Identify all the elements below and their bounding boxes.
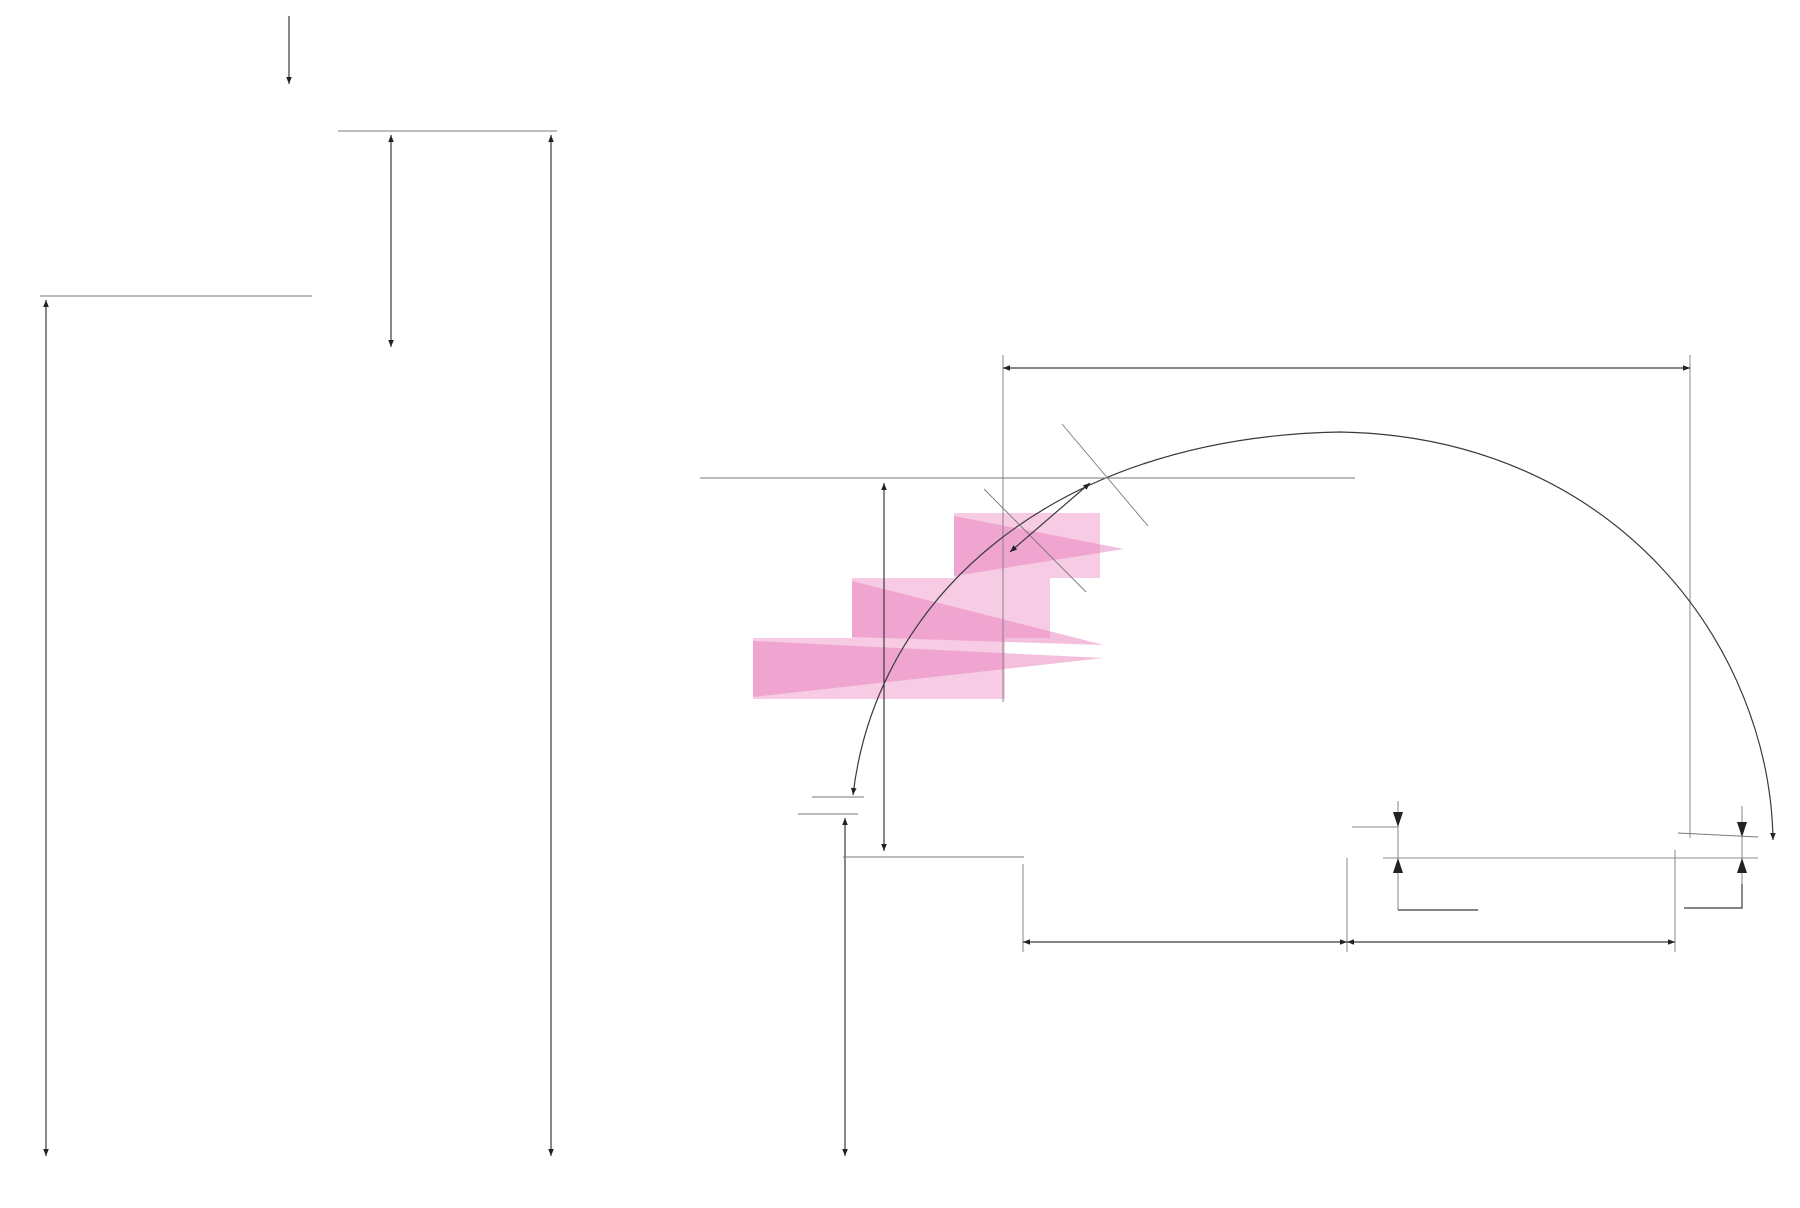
- end-rise-arrow-up: [1737, 858, 1747, 873]
- hub-offset-arrow-down: [1393, 812, 1403, 827]
- drawing-svg: [0, 0, 1800, 1208]
- projection-highlight: [753, 513, 1124, 699]
- technical-drawing-spiral-staircase: [0, 0, 1800, 1208]
- hub-offset-arrow-up: [1393, 858, 1403, 873]
- end-rise-arrow-down: [1737, 822, 1747, 837]
- step-width-extension-2: [1062, 424, 1148, 526]
- end-rise-leader: [1684, 884, 1742, 908]
